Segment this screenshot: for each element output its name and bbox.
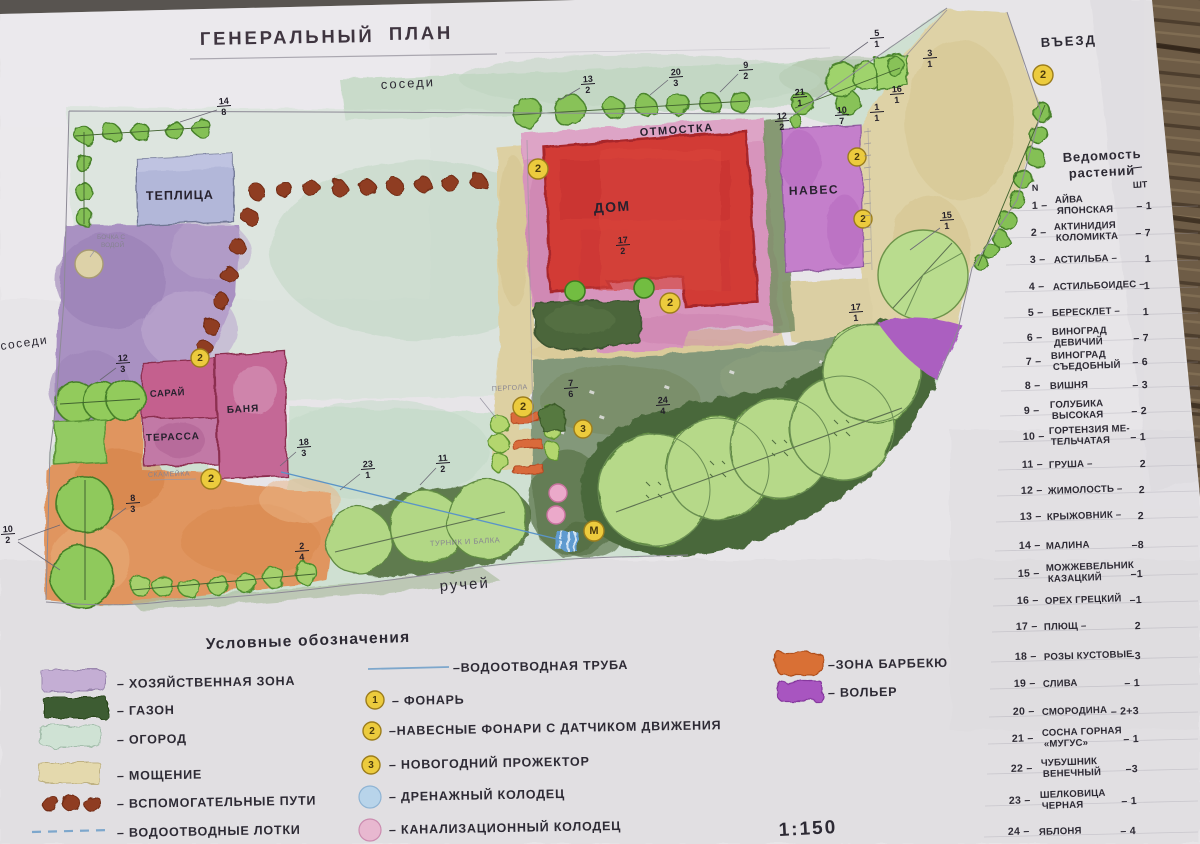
svg-text:–3: –3 <box>1128 650 1141 662</box>
svg-text:– 1: – 1 <box>1123 733 1139 746</box>
svg-text:1 –: 1 – <box>1032 199 1048 212</box>
svg-text:ВИШНЯ: ВИШНЯ <box>1050 380 1089 392</box>
svg-text:«МУГУС»: «МУГУС» <box>1044 737 1089 750</box>
svg-text:9 –: 9 – <box>1024 404 1040 417</box>
svg-text:ВЫСОКАЯ: ВЫСОКАЯ <box>1052 409 1104 422</box>
svg-text:1:150: 1:150 <box>778 817 838 841</box>
svg-text:8: 8 <box>221 107 227 117</box>
svg-text:ДЕВИЧИЙ: ДЕВИЧИЙ <box>1054 335 1103 349</box>
svg-text:2: 2 <box>535 163 541 175</box>
svg-text:3: 3 <box>120 364 126 374</box>
svg-text:– 4: – 4 <box>1120 825 1136 838</box>
svg-text:2: 2 <box>299 541 305 551</box>
svg-text:3: 3 <box>130 504 136 514</box>
svg-text:17 –: 17 – <box>1016 620 1038 633</box>
svg-text:5 –: 5 – <box>1028 306 1044 319</box>
svg-text:ПЛЮЩ –: ПЛЮЩ – <box>1044 621 1087 633</box>
svg-text:– ХОЗЯЙСТВЕННАЯ ЗОНА: – ХОЗЯЙСТВЕННАЯ ЗОНА <box>117 673 296 691</box>
svg-text:– МОЩЕНИЕ: – МОЩЕНИЕ <box>117 768 202 783</box>
svg-text:– 7: – 7 <box>1133 332 1149 345</box>
svg-text:ДОМ: ДОМ <box>593 197 631 216</box>
svg-text:1: 1 <box>797 98 803 108</box>
svg-text:1: 1 <box>372 695 378 706</box>
svg-text:БАНЯ: БАНЯ <box>227 403 260 416</box>
svg-text:2: 2 <box>1140 458 1147 470</box>
svg-text:14 –: 14 – <box>1019 539 1041 552</box>
svg-text:12 –: 12 – <box>1021 484 1043 497</box>
svg-text:3: 3 <box>927 48 933 58</box>
svg-text:1: 1 <box>944 221 950 231</box>
svg-text:12: 12 <box>776 111 787 122</box>
svg-text:1: 1 <box>874 113 880 123</box>
svg-text:7 –: 7 – <box>1026 355 1042 368</box>
svg-text:2: 2 <box>5 535 11 545</box>
svg-text:N: N <box>1032 183 1039 193</box>
svg-text:7: 7 <box>568 378 574 388</box>
svg-text:– 2: – 2 <box>1131 405 1147 418</box>
svg-text:ВЕНЕЧНЫЙ: ВЕНЕЧНЫЙ <box>1043 766 1102 780</box>
svg-text:2: 2 <box>208 473 214 485</box>
svg-text:– 1: – 1 <box>1121 795 1137 808</box>
svg-text:2: 2 <box>369 726 375 737</box>
svg-text:ГЕНЕРАЛЬНЫЙ: ГЕНЕРАЛЬНЫЙ <box>200 25 375 49</box>
svg-text:22 –: 22 – <box>1011 762 1033 775</box>
svg-text:–ЗОНА БАРБЕКЮ: –ЗОНА БАРБЕКЮ <box>828 656 948 672</box>
svg-text:17: 17 <box>850 302 861 313</box>
svg-text:1: 1 <box>853 313 859 323</box>
svg-text:–8: –8 <box>1131 539 1144 551</box>
svg-text:23 –: 23 – <box>1009 794 1031 807</box>
svg-text:10: 10 <box>2 524 13 535</box>
svg-text:МАЛИНА: МАЛИНА <box>1046 539 1090 552</box>
svg-text:1: 1 <box>874 39 880 49</box>
svg-text:10: 10 <box>836 105 847 116</box>
svg-text:АЙВА: АЙВА <box>1055 193 1083 206</box>
svg-text:ТЕПЛИЦА: ТЕПЛИЦА <box>146 188 214 203</box>
svg-text:13: 13 <box>582 74 593 85</box>
svg-text:14: 14 <box>218 96 229 107</box>
svg-text:1: 1 <box>874 102 880 112</box>
svg-text:– 7: – 7 <box>1135 227 1151 240</box>
svg-text:КАЗАЦКИЙ: КАЗАЦКИЙ <box>1048 571 1102 585</box>
svg-text:23: 23 <box>362 459 373 470</box>
svg-text:– ДРЕНАЖНЫЙ КОЛОДЕЦ: – ДРЕНАЖНЫЙ КОЛОДЕЦ <box>389 786 565 804</box>
svg-text:– ВОЛЬЕР: – ВОЛЬЕР <box>828 685 898 700</box>
svg-text:7: 7 <box>839 116 845 126</box>
svg-text:16 –: 16 – <box>1017 594 1039 607</box>
svg-text:4: 4 <box>660 406 666 416</box>
svg-text:3: 3 <box>580 424 586 435</box>
svg-text:1: 1 <box>1144 280 1151 292</box>
svg-text:– ОГОРОД: – ОГОРОД <box>117 732 187 747</box>
svg-text:ВОДОЙ: ВОДОЙ <box>101 240 124 249</box>
svg-text:– 1: – 1 <box>1124 677 1140 690</box>
svg-text:– ГАЗОН: – ГАЗОН <box>117 703 175 718</box>
svg-text:ПЛАН: ПЛАН <box>389 22 454 44</box>
svg-text:10 –: 10 – <box>1023 430 1045 443</box>
svg-text:– 6: – 6 <box>1132 356 1148 369</box>
svg-text:ручей: ручей <box>439 575 490 595</box>
svg-text:ГРУША –: ГРУША – <box>1049 458 1093 471</box>
svg-text:21 –: 21 – <box>1012 732 1034 745</box>
svg-text:– 1: – 1 <box>1130 431 1146 444</box>
svg-text:ЯПОНСКАЯ: ЯПОНСКАЯ <box>1057 204 1114 217</box>
svg-text:–1: –1 <box>1129 594 1142 606</box>
svg-text:8 –: 8 – <box>1025 379 1041 392</box>
svg-text:2: 2 <box>1135 620 1142 632</box>
svg-text:2: 2 <box>743 71 749 81</box>
svg-text:САРАЙ: САРАЙ <box>150 386 186 400</box>
svg-text:3 –: 3 – <box>1030 253 1046 266</box>
svg-text:5: 5 <box>874 28 880 38</box>
svg-text:ТЕРАССА: ТЕРАССА <box>146 431 200 444</box>
svg-text:9: 9 <box>743 60 749 70</box>
svg-text:– 3: – 3 <box>1132 379 1148 392</box>
svg-text:ЧЕРНАЯ: ЧЕРНАЯ <box>1042 800 1084 812</box>
svg-text:13 –: 13 – <box>1020 510 1042 523</box>
svg-text:15 –: 15 – <box>1018 567 1040 580</box>
svg-text:СМОРОДИНА: СМОРОДИНА <box>1042 705 1108 718</box>
svg-text:1: 1 <box>894 95 900 105</box>
svg-text:1: 1 <box>1145 253 1152 265</box>
svg-text:8: 8 <box>130 493 136 503</box>
svg-text:БОЧКА С: БОЧКА С <box>97 234 125 241</box>
svg-text:11: 11 <box>438 453 448 464</box>
svg-text:15: 15 <box>941 210 952 221</box>
svg-text:2: 2 <box>620 246 626 256</box>
svg-text:2: 2 <box>440 464 446 474</box>
svg-text:24: 24 <box>657 395 668 406</box>
svg-text:18: 18 <box>298 437 309 448</box>
svg-text:4 –: 4 – <box>1029 280 1045 293</box>
svg-text:6 –: 6 – <box>1027 331 1043 344</box>
svg-text:КОЛОМИКТА: КОЛОМИКТА <box>1056 231 1119 244</box>
svg-text:2: 2 <box>520 401 526 413</box>
svg-text:16: 16 <box>891 84 902 95</box>
svg-text:2: 2 <box>667 297 673 309</box>
svg-text:– 1: – 1 <box>1136 200 1152 213</box>
svg-text:19 –: 19 – <box>1014 677 1036 690</box>
svg-text:20: 20 <box>670 67 681 78</box>
svg-text:2 –: 2 – <box>1031 226 1047 239</box>
svg-text:ЯБЛОНЯ: ЯБЛОНЯ <box>1039 826 1082 838</box>
svg-text:3: 3 <box>301 448 307 458</box>
svg-text:–3: –3 <box>1125 763 1138 775</box>
svg-text:соседи: соседи <box>380 74 435 92</box>
svg-text:2: 2 <box>1040 69 1046 81</box>
svg-text:1: 1 <box>365 470 371 480</box>
svg-text:СЛИВА: СЛИВА <box>1043 678 1078 690</box>
svg-text:18 –: 18 – <box>1015 650 1037 663</box>
svg-text:2: 2 <box>779 122 785 132</box>
svg-text:М: М <box>589 525 598 537</box>
svg-text:12: 12 <box>117 353 128 364</box>
svg-text:СЪЕДОБНЫЙ: СЪЕДОБНЫЙ <box>1053 359 1121 373</box>
svg-text:4: 4 <box>299 552 305 562</box>
svg-text:ВЪЕЗД: ВЪЕЗД <box>1040 32 1097 50</box>
svg-text:ШТ: ШТ <box>1133 179 1149 190</box>
svg-text:– 2+3: – 2+3 <box>1111 705 1139 718</box>
svg-text:21: 21 <box>794 87 805 98</box>
svg-text:– ФОНАРЬ: – ФОНАРЬ <box>392 693 465 708</box>
svg-text:2: 2 <box>854 152 860 163</box>
svg-text:2: 2 <box>585 85 591 95</box>
svg-text:3: 3 <box>673 78 679 88</box>
svg-text:–1: –1 <box>1130 568 1143 580</box>
svg-text:НАВЕС: НАВЕС <box>789 182 840 198</box>
svg-text:АСТИЛЬБА –: АСТИЛЬБА – <box>1054 253 1118 266</box>
svg-text:2: 2 <box>1138 510 1145 522</box>
svg-text:11 –: 11 – <box>1022 458 1043 471</box>
svg-text:20 –: 20 – <box>1013 705 1035 718</box>
svg-text:6: 6 <box>568 389 574 399</box>
svg-text:24 –: 24 – <box>1008 825 1030 838</box>
svg-text:3: 3 <box>368 760 374 771</box>
svg-text:1: 1 <box>1143 306 1150 318</box>
svg-text:2: 2 <box>1139 484 1146 496</box>
svg-text:2: 2 <box>197 353 203 364</box>
svg-text:ТЕЛЬЧАТАЯ: ТЕЛЬЧАТАЯ <box>1051 435 1111 448</box>
svg-text:17: 17 <box>617 235 628 246</box>
svg-text:1: 1 <box>927 59 933 69</box>
